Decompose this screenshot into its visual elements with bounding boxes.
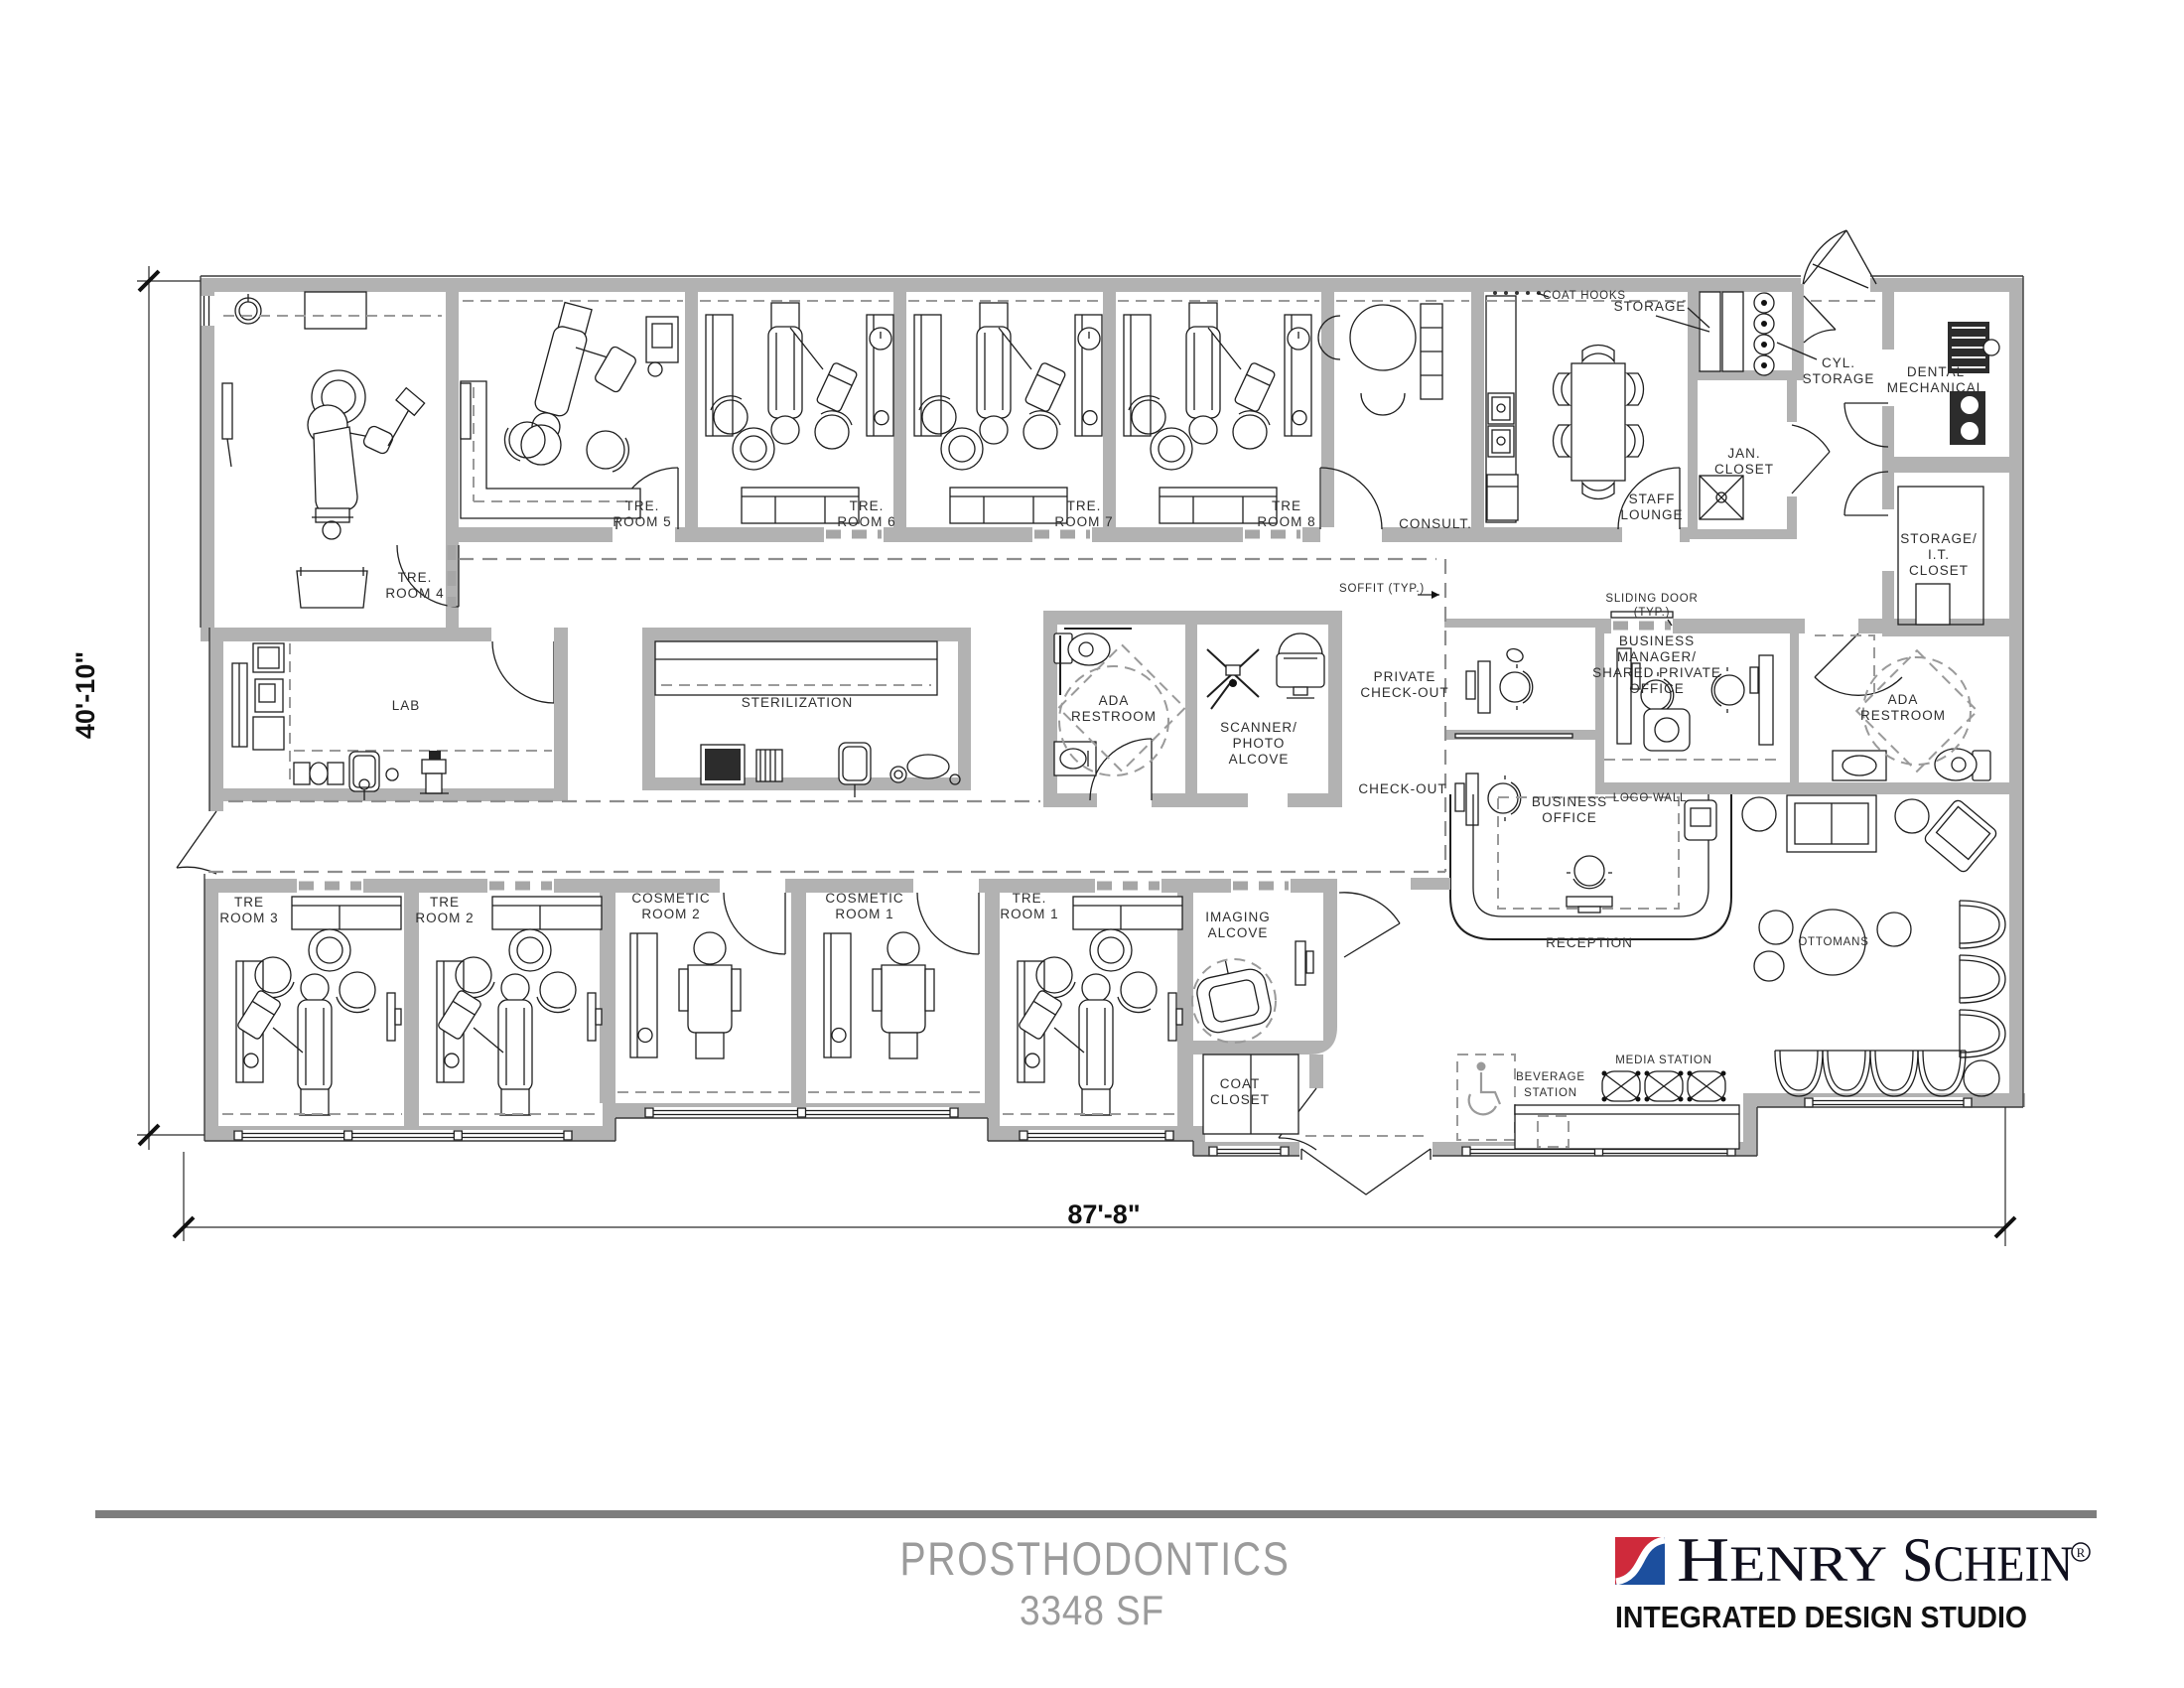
svg-text:ROOM 4: ROOM 4 [385,586,444,601]
svg-text:ROOM 5: ROOM 5 [613,514,671,529]
svg-text:BEVERAGE: BEVERAGE [1516,1071,1585,1083]
svg-text:LOGO WALL: LOGO WALL [1613,792,1688,804]
svg-text:OFFICE: OFFICE [1629,681,1685,696]
svg-text:TRE.: TRE. [398,570,433,585]
svg-text:R: R [2077,1545,2086,1560]
svg-text:TRE: TRE [234,895,264,910]
svg-text:MEDIA STATION: MEDIA STATION [1615,1055,1712,1066]
svg-text:CLOSET: CLOSET [1210,1092,1270,1107]
svg-text:IMAGING: IMAGING [1205,910,1271,924]
svg-text:STORAGE/: STORAGE/ [1900,531,1978,546]
svg-text:STERILIZATION: STERILIZATION [742,695,854,710]
svg-text:ADA: ADA [1099,693,1130,708]
svg-text:SLIDING DOOR: SLIDING DOOR [1605,593,1698,605]
svg-text:MANAGER/: MANAGER/ [1617,649,1697,664]
svg-text:SCANNER/: SCANNER/ [1220,720,1297,735]
svg-text:ROOM 1: ROOM 1 [1000,907,1058,921]
svg-text:CLOSET: CLOSET [1714,462,1774,477]
svg-text:RECEPTION: RECEPTION [1546,935,1633,950]
svg-text:(TYP.): (TYP.) [1634,607,1671,619]
svg-text:TRE: TRE [1272,498,1301,513]
svg-text:TRE.: TRE. [1013,891,1047,906]
svg-text:COSMETIC: COSMETIC [631,891,710,906]
svg-text:3348 SF: 3348 SF [1020,1587,1164,1633]
svg-text:I.T.: I.T. [1928,547,1950,562]
svg-text:STATION: STATION [1524,1087,1577,1099]
svg-text:PROSTHODONTICS: PROSTHODONTICS [900,1532,1291,1585]
svg-text:PRIVATE: PRIVATE [1374,669,1436,684]
svg-text:BUSINESS: BUSINESS [1532,794,1607,809]
svg-text:SHARED PRIVATE: SHARED PRIVATE [1592,665,1721,680]
svg-text:87'-8": 87'-8" [1067,1199,1140,1229]
svg-text:COAT: COAT [1220,1076,1261,1091]
svg-text:ROOM 1: ROOM 1 [835,907,893,921]
svg-text:CLOSET: CLOSET [1909,563,1969,578]
svg-text:TRE: TRE [430,895,460,910]
svg-text:PHOTO: PHOTO [1233,736,1286,751]
svg-text:RESTROOM: RESTROOM [1071,709,1157,724]
svg-text:ROOM 8: ROOM 8 [1257,514,1315,529]
svg-text:ROOM 3: ROOM 3 [219,911,278,925]
svg-text:ALCOVE: ALCOVE [1208,925,1269,940]
svg-text:ROOM 7: ROOM 7 [1054,514,1113,529]
svg-text:JAN.: JAN. [1727,446,1760,461]
svg-text:SOFFIT (TYP.): SOFFIT (TYP.) [1339,583,1425,595]
svg-text:CONSULT.: CONSULT. [1399,516,1472,531]
svg-text:OFFICE: OFFICE [1542,810,1597,825]
svg-text:STORAGE: STORAGE [1614,299,1687,314]
svg-text:STAFF: STAFF [1629,492,1676,506]
svg-text:ADA: ADA [1888,692,1919,707]
svg-text:LOUNGE: LOUNGE [1620,507,1683,522]
svg-text:TRE.: TRE. [1067,498,1102,513]
svg-text:CHECK-OUT: CHECK-OUT [1358,781,1446,796]
svg-text:CHECK-OUT: CHECK-OUT [1360,685,1448,700]
svg-text:STORAGE: STORAGE [1803,371,1875,386]
svg-text:BUSINESS: BUSINESS [1619,633,1695,648]
svg-text:OTTOMANS: OTTOMANS [1798,936,1868,948]
svg-text:INTEGRATED DESIGN STUDIO: INTEGRATED DESIGN STUDIO [1615,1600,2027,1634]
svg-text:LAB: LAB [392,698,421,713]
svg-text:ALCOVE: ALCOVE [1229,752,1290,767]
svg-text:40'-10": 40'-10" [70,651,100,739]
svg-text:COSMETIC: COSMETIC [825,891,903,906]
svg-text:TRE.: TRE. [850,498,885,513]
svg-text:MECHANICAL: MECHANICAL [1887,380,1985,395]
svg-text:ROOM 2: ROOM 2 [415,911,474,925]
svg-text:CYL.: CYL. [1822,355,1855,370]
svg-text:ROOM 2: ROOM 2 [641,907,700,921]
svg-text:RESTROOM: RESTROOM [1860,708,1946,723]
svg-text:TRE.: TRE. [625,498,660,513]
svg-text:DENTAL: DENTAL [1907,364,1965,379]
svg-text:ROOM 6: ROOM 6 [837,514,895,529]
